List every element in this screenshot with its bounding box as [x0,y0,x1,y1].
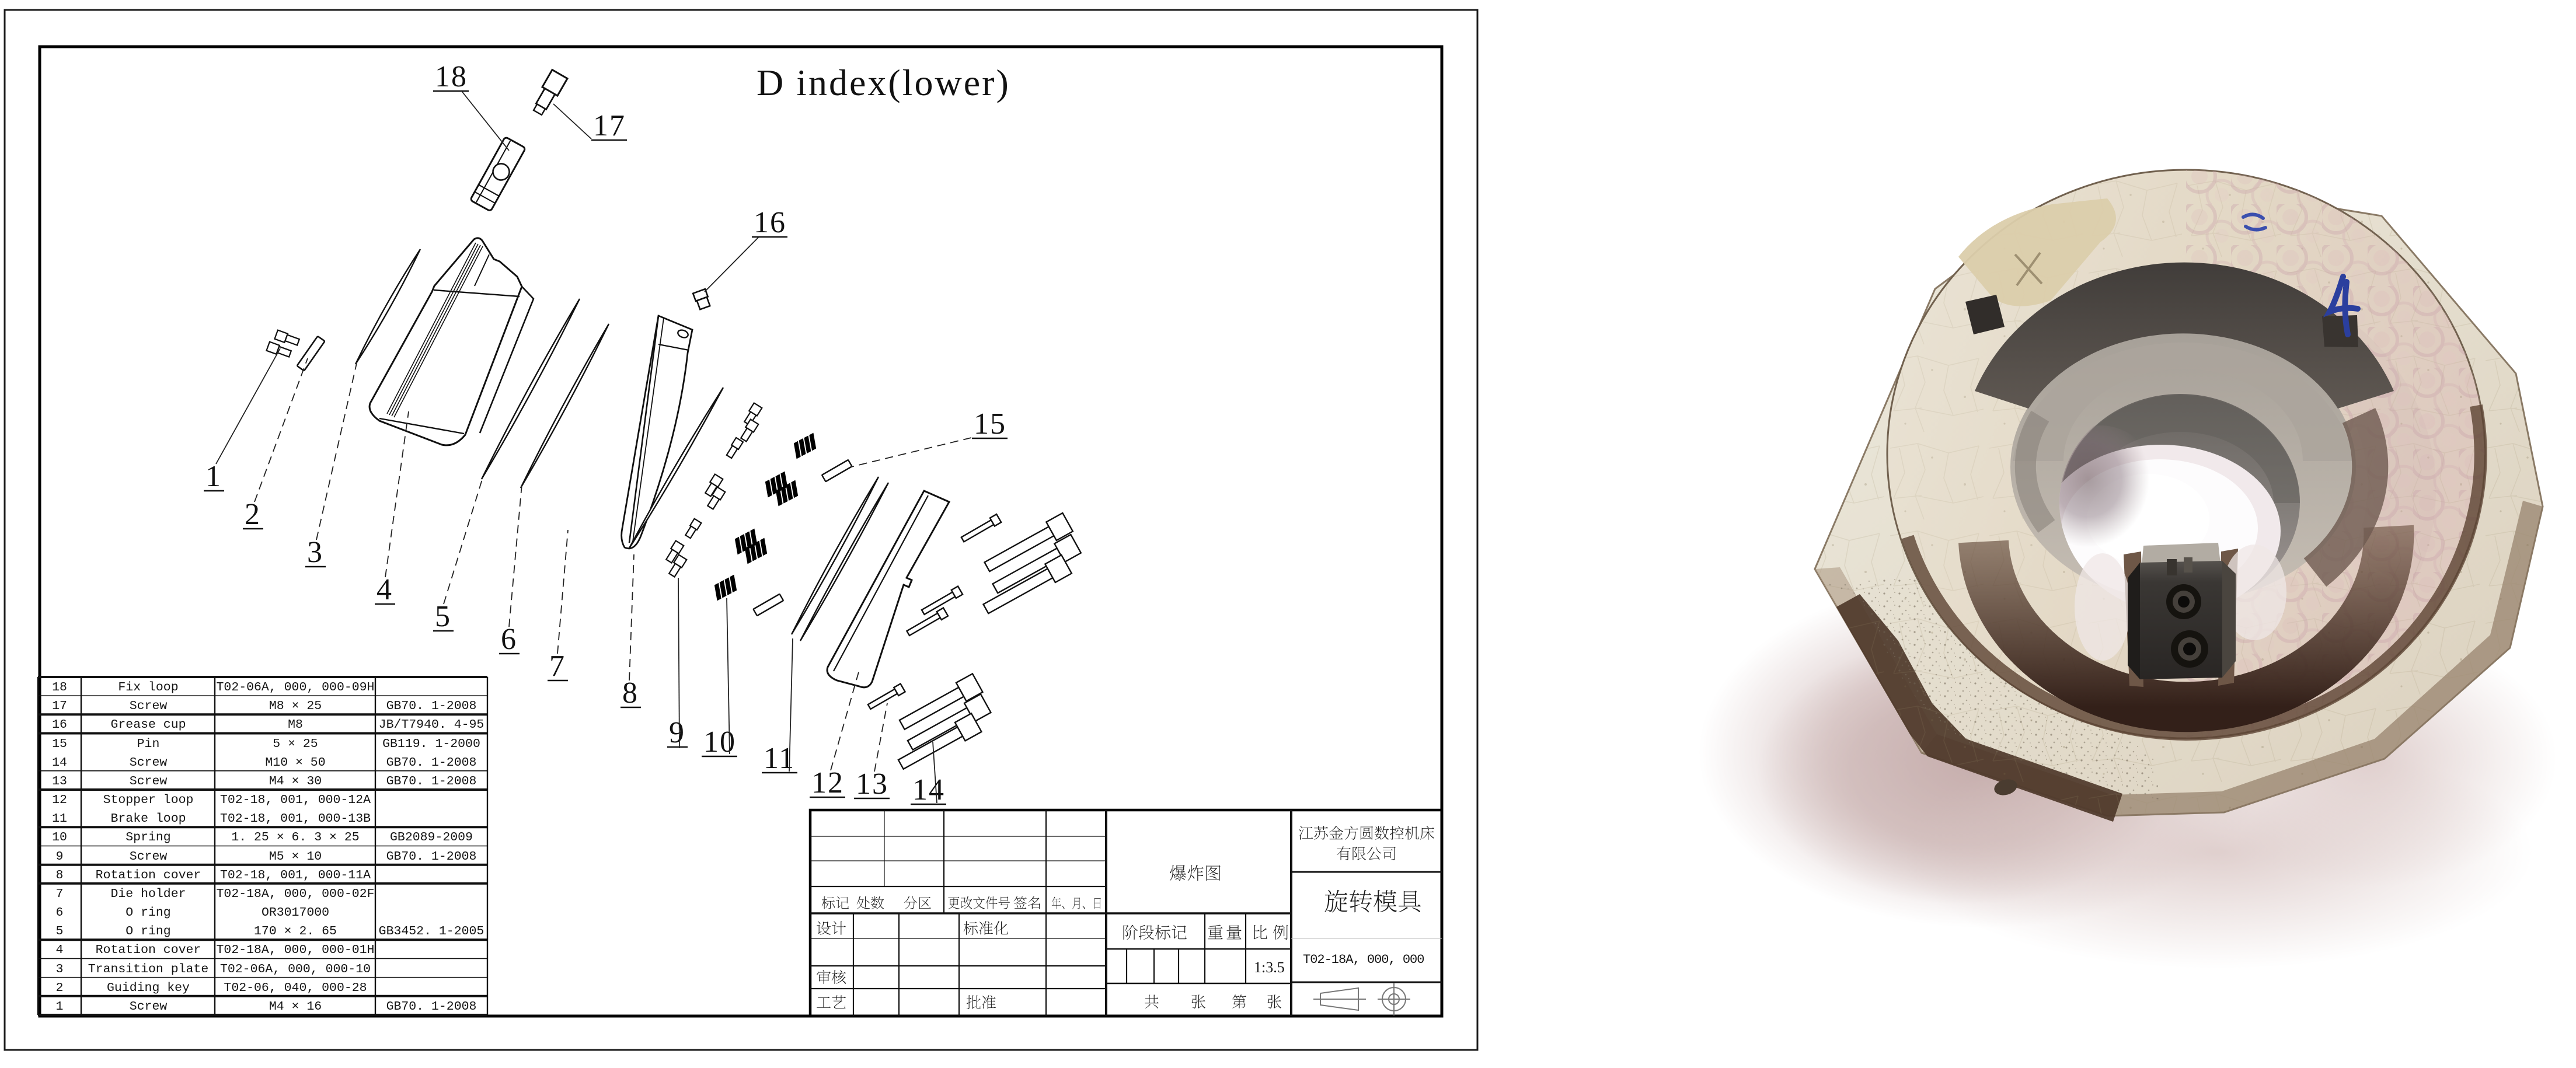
svg-text:17: 17 [593,109,626,142]
svg-text:GB70. 1-2008: GB70. 1-2008 [386,1000,477,1014]
svg-text:8: 8 [56,868,64,882]
svg-text:Grease cup: Grease cup [110,718,186,732]
svg-text:4: 4 [56,943,64,957]
svg-text:3: 3 [307,536,323,569]
svg-text:GB70. 1-2008: GB70. 1-2008 [386,699,477,713]
svg-text:8: 8 [622,676,639,710]
svg-text:T02-18A, 000, 000-01H: T02-18A, 000, 000-01H [217,943,375,957]
svg-text:GB70. 1-2008: GB70. 1-2008 [386,774,477,788]
svg-text:Transition plate: Transition plate [88,962,208,976]
svg-text:Die holder: Die holder [110,887,186,901]
svg-text:T02-06A, 000, 000-10: T02-06A, 000, 000-10 [220,962,371,976]
svg-text:Brake loop: Brake loop [110,812,186,826]
svg-text:11: 11 [52,812,67,826]
svg-text:GB70. 1-2008: GB70. 1-2008 [386,850,477,864]
svg-text:M10 × 50: M10 × 50 [265,756,325,770]
svg-text:1. 25 × 6. 3 × 25: 1. 25 × 6. 3 × 25 [231,830,359,844]
svg-text:M5 × 10: M5 × 10 [269,850,322,864]
svg-text:2: 2 [56,981,64,995]
svg-text:4: 4 [377,573,393,606]
svg-text:1:3.5: 1:3.5 [1254,959,1285,976]
svg-text:9: 9 [669,716,685,749]
svg-text:12: 12 [811,766,844,800]
svg-text:6: 6 [56,906,64,920]
svg-text:Screw: Screw [130,699,168,713]
svg-text:GB2089-2009: GB2089-2009 [390,830,473,844]
svg-text:Spring: Spring [126,830,170,844]
svg-text:T02-18A, 000, 000-02F: T02-18A, 000, 000-02F [217,887,375,901]
svg-text:M4 × 16: M4 × 16 [269,1000,322,1014]
svg-text:Screw: Screw [130,756,168,770]
svg-text:13: 13 [52,774,67,788]
svg-text:18: 18 [52,680,67,694]
svg-text:170 × 2. 65: 170 × 2. 65 [254,924,337,938]
svg-text:GB3452. 1-2005: GB3452. 1-2005 [379,924,484,938]
svg-text:17: 17 [52,699,67,713]
svg-text:OR3017000: OR3017000 [262,906,329,920]
svg-text:M8: M8 [288,718,303,732]
svg-text:10: 10 [703,725,736,759]
svg-text:Rotation cover: Rotation cover [96,943,201,957]
svg-text:T02-06, 040, 000-28: T02-06, 040, 000-28 [224,981,367,995]
svg-text:16: 16 [52,718,67,732]
svg-text:M4 × 30: M4 × 30 [269,774,322,788]
svg-text:Fix loop: Fix loop [118,680,178,694]
svg-text:M8 × 25: M8 × 25 [269,699,322,713]
svg-text:14: 14 [912,773,945,807]
svg-text:T02-18A, 000, 000: T02-18A, 000, 000 [1303,952,1424,967]
svg-text:3: 3 [56,962,64,976]
svg-text:6: 6 [501,623,517,656]
svg-text:16: 16 [754,206,786,239]
svg-text:Screw: Screw [130,774,168,788]
svg-text:5: 5 [56,924,64,938]
svg-text:T02-18, 001, 000-13B: T02-18, 001, 000-13B [220,812,371,826]
svg-text:JB/T7940. 4-95: JB/T7940. 4-95 [379,718,484,732]
svg-text:7: 7 [549,650,566,683]
svg-text:18: 18 [435,60,468,93]
svg-text:T02-18, 001, 000-11A: T02-18, 001, 000-11A [220,868,371,882]
svg-text:1: 1 [56,1000,64,1014]
svg-text:Stopper loop: Stopper loop [103,793,194,807]
svg-text:5 × 25: 5 × 25 [273,737,318,751]
svg-text:Pin: Pin [137,737,160,751]
svg-text:GB70. 1-2008: GB70. 1-2008 [386,756,477,770]
svg-text:7: 7 [56,887,64,901]
svg-text:10: 10 [52,830,67,844]
svg-text:15: 15 [974,407,1006,441]
svg-text:O ring: O ring [126,924,170,938]
svg-text:Screw: Screw [130,850,168,864]
svg-text:D index(lower): D index(lower) [757,62,1010,103]
svg-text:14: 14 [52,756,67,770]
svg-text:1: 1 [205,460,222,493]
svg-text:T02-18, 001, 000-12A: T02-18, 001, 000-12A [220,793,371,807]
svg-text:13: 13 [856,767,888,801]
svg-text:9: 9 [56,850,64,864]
svg-text:T02-06A, 000, 000-09H: T02-06A, 000, 000-09H [217,680,375,694]
svg-text:Guiding key: Guiding key [107,981,190,995]
svg-text:O ring: O ring [126,906,170,920]
svg-text:15: 15 [52,737,67,751]
svg-text:Rotation cover: Rotation cover [96,868,201,882]
svg-text:5: 5 [435,600,451,633]
svg-text:Screw: Screw [130,1000,168,1014]
svg-text:12: 12 [52,793,67,807]
svg-text:2: 2 [245,498,261,531]
svg-text:GB119. 1-2000: GB119. 1-2000 [382,737,480,751]
